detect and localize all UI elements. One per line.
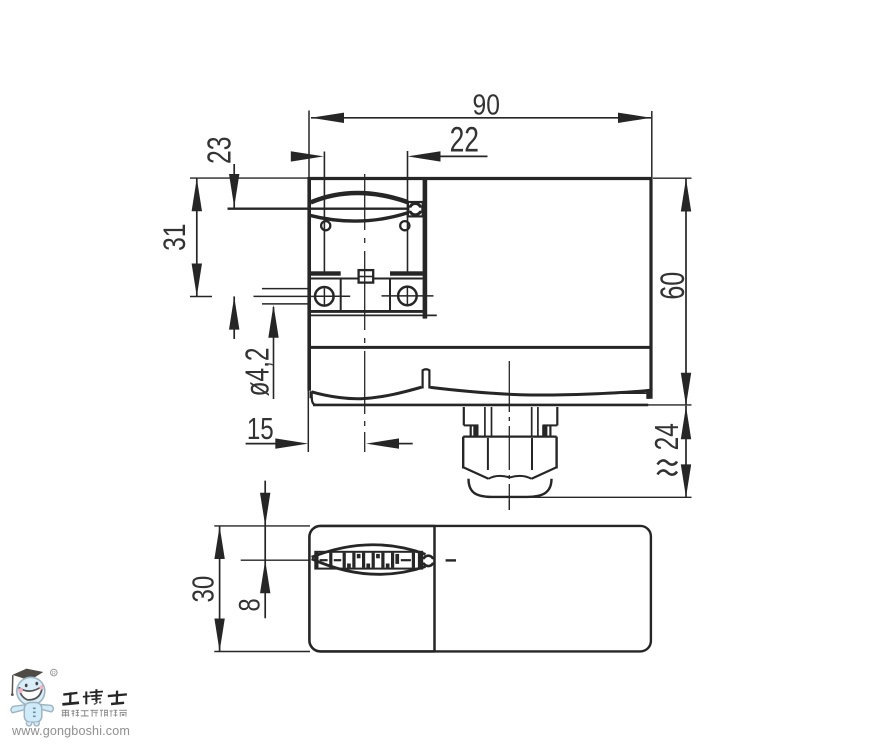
svg-text:60: 60 [654, 272, 692, 300]
svg-text:31: 31 [156, 224, 192, 251]
svg-text:22: 22 [450, 120, 479, 160]
svg-text:90: 90 [472, 89, 499, 121]
svg-text:ø4,2: ø4,2 [240, 348, 276, 397]
svg-text:23: 23 [202, 136, 238, 164]
svg-text:www.gongboshi.com: www.gongboshi.com [11, 724, 130, 738]
svg-text:R: R [52, 671, 56, 677]
svg-text:24: 24 [650, 423, 686, 450]
svg-text:8: 8 [233, 598, 266, 611]
svg-text:15: 15 [247, 411, 274, 446]
svg-text:30: 30 [186, 576, 220, 603]
